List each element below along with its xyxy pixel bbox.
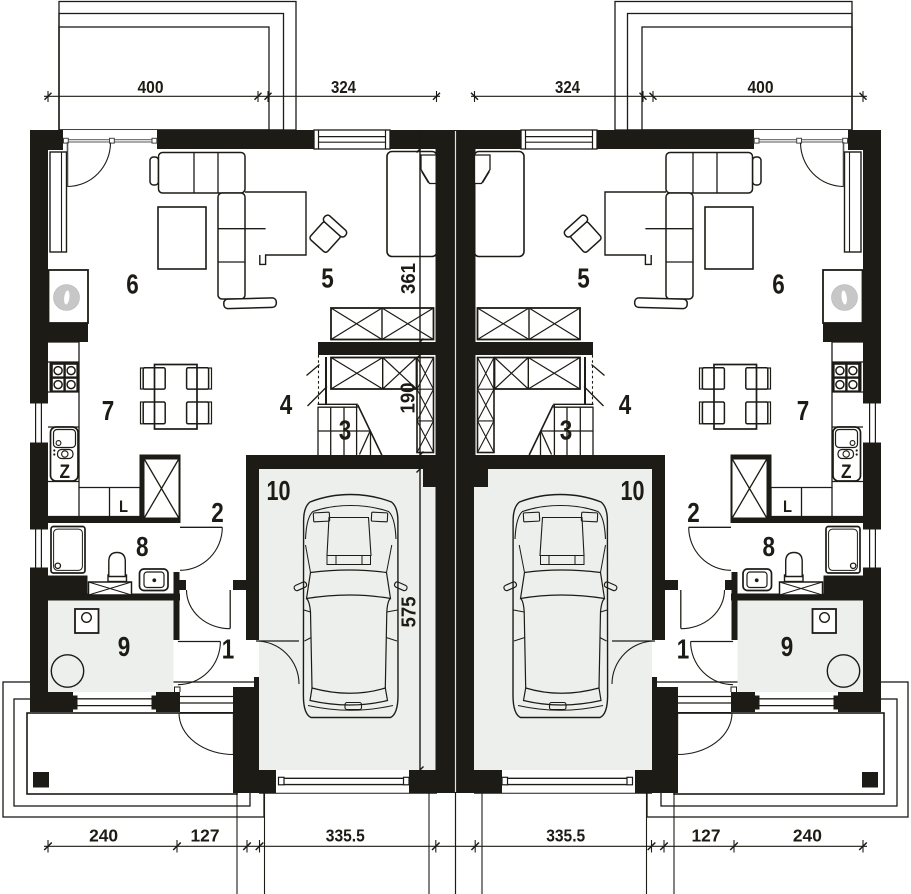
svg-text:3: 3 [339, 415, 352, 446]
svg-text:9: 9 [118, 631, 131, 662]
svg-text:190: 190 [398, 383, 420, 414]
svg-text:1: 1 [677, 634, 690, 665]
svg-text:335.5: 335.5 [546, 826, 585, 846]
svg-text:10: 10 [267, 475, 291, 506]
svg-text:6: 6 [772, 269, 785, 300]
svg-text:4: 4 [280, 389, 293, 420]
svg-text:4: 4 [619, 389, 632, 420]
svg-text:Z: Z [60, 462, 71, 483]
svg-text:127: 127 [191, 826, 220, 846]
svg-text:7: 7 [797, 395, 810, 426]
svg-text:575: 575 [399, 597, 421, 628]
svg-text:127: 127 [692, 826, 721, 846]
svg-text:L: L [119, 497, 128, 516]
svg-text:240: 240 [793, 826, 822, 846]
svg-text:8: 8 [136, 531, 149, 562]
svg-text:3: 3 [560, 415, 573, 446]
svg-text:9: 9 [781, 631, 794, 662]
svg-text:324: 324 [555, 77, 580, 97]
svg-text:335.5: 335.5 [326, 826, 365, 846]
svg-text:361: 361 [398, 263, 420, 294]
svg-text:6: 6 [126, 269, 139, 300]
svg-text:2: 2 [211, 497, 224, 528]
svg-text:400: 400 [138, 77, 164, 97]
svg-text:5: 5 [321, 263, 334, 294]
svg-text:7: 7 [102, 395, 115, 426]
svg-text:10: 10 [621, 475, 645, 506]
svg-text:8: 8 [762, 531, 775, 562]
svg-text:Z: Z [841, 462, 852, 483]
svg-text:2: 2 [687, 497, 700, 528]
svg-text:240: 240 [89, 826, 118, 846]
svg-text:L: L [783, 497, 792, 516]
svg-text:400: 400 [748, 77, 774, 97]
svg-text:1: 1 [222, 634, 235, 665]
svg-text:324: 324 [331, 77, 356, 97]
svg-text:5: 5 [577, 263, 590, 294]
